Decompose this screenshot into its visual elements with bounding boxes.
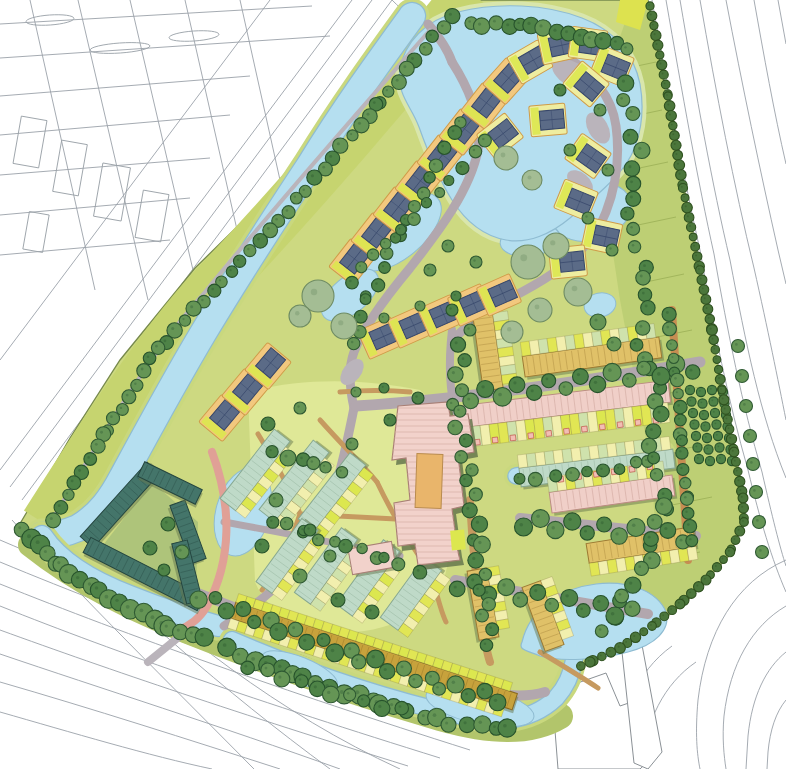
masterplan-stage [0,0,786,769]
masterplan-canvas [0,0,786,769]
